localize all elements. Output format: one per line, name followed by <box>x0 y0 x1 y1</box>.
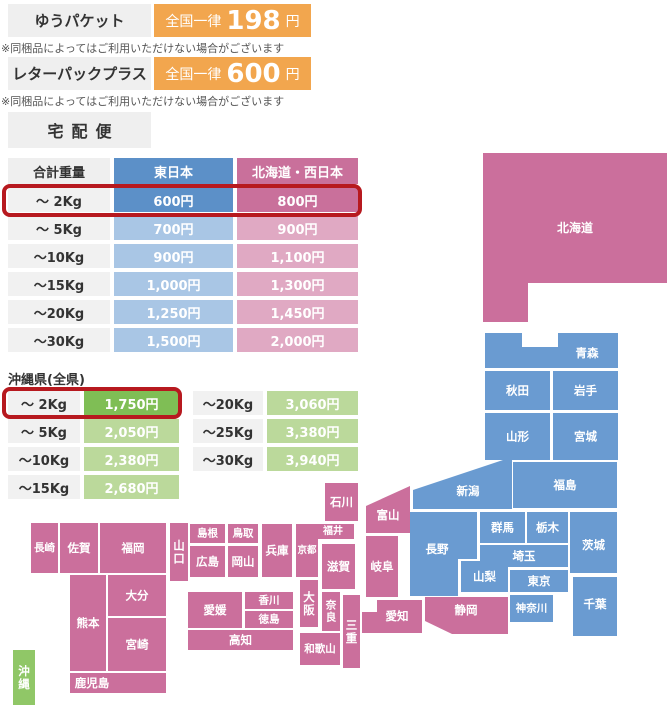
map-pref-label: 北海道 <box>557 220 593 235</box>
map-pref-label: 埼玉 <box>513 549 536 563</box>
map-pref-label: 山形 <box>506 430 529 444</box>
map-pref-label: 愛知 <box>386 609 409 623</box>
map-pref-osaka: 大阪 <box>300 580 318 627</box>
map-pref-hyogo: 兵庫 <box>262 524 292 577</box>
map-pref-label: 徳島 <box>258 613 280 626</box>
map-pref-kanagawa: 神奈川 <box>510 595 553 622</box>
map-pref-label: 秋田 <box>506 384 529 398</box>
map-pref-fukushima: 福島 <box>513 462 617 508</box>
map-pref-wakayama: 和歌山 <box>300 633 340 665</box>
map-pref-label: 長野 <box>426 542 449 556</box>
map-pref-label: 広島 <box>196 555 219 569</box>
map-pref-label: 宮崎 <box>126 638 149 652</box>
map-pref-label: 岡山 <box>232 555 255 569</box>
map-pref-fukui: 福井 <box>312 524 354 539</box>
map-pref-tokushima: 徳島 <box>245 611 293 628</box>
map-pref-toyama: 富山 <box>366 486 410 533</box>
shipping-rates-page: ゆうパケット 全国一律 198 円 ※同梱品によってはご利用いただけない場合がご… <box>0 0 667 711</box>
map-pref-label: 香川 <box>258 594 280 607</box>
map-pref-mie: 三重 <box>343 595 360 668</box>
map-pref-label: 山梨 <box>473 570 496 584</box>
map-pref-miyagi: 宮城 <box>553 413 618 460</box>
map-pref-tottori: 鳥取 <box>228 524 258 543</box>
map-pref-miyazaki: 宮崎 <box>108 618 166 671</box>
map-pref-yamagata: 山形 <box>485 413 550 460</box>
map-pref-ehime: 愛媛 <box>188 592 242 628</box>
map-pref-nara: 奈良 <box>322 592 340 631</box>
map-pref-label: 兵庫 <box>266 544 289 558</box>
map-pref-label: 山口 <box>173 539 185 566</box>
map-pref-label: 栃木 <box>536 521 559 535</box>
map-pref-label: 静岡 <box>455 603 478 617</box>
map-pref-label: 奈良 <box>325 599 337 624</box>
map-pref-shiga: 滋賀 <box>322 544 355 589</box>
map-pref-tochigi: 栃木 <box>527 512 568 543</box>
map-pref-label: 福岡 <box>121 541 145 555</box>
map-pref-label: 千葉 <box>584 597 607 611</box>
map-pref-label: 福島 <box>553 478 577 492</box>
map-pref-kochi: 高知 <box>188 630 293 650</box>
map-pref-label: 愛媛 <box>204 603 227 617</box>
map-pref-nagasaki: 長崎 <box>31 523 58 573</box>
map-pref-label: 滋賀 <box>327 560 350 574</box>
map-pref-label: 岩手 <box>573 384 597 398</box>
map-pref-label: 東京 <box>528 574 551 588</box>
map-pref-gunma: 群馬 <box>480 512 525 543</box>
map-pref-saga: 佐賀 <box>60 523 98 573</box>
map-pref-label: 青森 <box>576 346 599 360</box>
map-pref-label: 石川 <box>329 495 353 509</box>
map-pref-label: 茨城 <box>582 538 605 552</box>
map-pref-label: 福井 <box>322 524 343 537</box>
map-pref-oita: 大分 <box>108 575 166 616</box>
map-pref-label: 和歌山 <box>303 642 336 655</box>
map-pref-hokkaido: 北海道 <box>483 153 667 322</box>
map-pref-okinawa: 沖縄 <box>13 650 35 705</box>
map-pref-shimane: 島根 <box>190 524 225 543</box>
map-pref-label: 熊本 <box>77 616 100 630</box>
map-pref-ishikawa: 石川 <box>325 483 358 521</box>
map-pref-kumamoto: 熊本 <box>70 575 106 671</box>
map-pref-label: 宮城 <box>574 430 597 444</box>
map-pref-label: 富山 <box>377 508 400 522</box>
map-pref-kagoshima: 鹿児島 <box>70 673 166 693</box>
map-pref-label: 大分 <box>126 589 149 603</box>
map-pref-kyoto: 京都 <box>296 524 318 577</box>
map-pref-label: 鳥取 <box>233 527 254 540</box>
map-pref-label: 京都 <box>297 544 317 556</box>
map-pref-fukuoka: 福岡 <box>100 523 166 573</box>
map-pref-label: 鹿児島 <box>75 676 110 690</box>
map-pref-label: 三重 <box>346 618 358 645</box>
map-pref-label: 高知 <box>229 633 252 647</box>
map-pref-label: 岐阜 <box>371 560 394 574</box>
map-pref-chiba: 千葉 <box>573 577 617 636</box>
map-pref-label: 新潟 <box>457 484 480 498</box>
map-pref-label: 神奈川 <box>516 602 548 615</box>
map-pref-aichi: 愛知 <box>362 600 422 633</box>
map-pref-label: 島根 <box>197 527 218 540</box>
map-pref-okayama: 岡山 <box>228 546 258 577</box>
map-pref-gifu: 岐阜 <box>366 536 398 597</box>
map-pref-label: 大阪 <box>303 590 315 617</box>
map-pref-niigata: 新潟 <box>413 457 512 509</box>
japan-map: 北海道青森秋田岩手山形宮城福島新潟長野群馬栃木茨城埼玉山梨東京神奈川千葉石川富山… <box>0 0 667 711</box>
map-pref-label: 長崎 <box>34 541 55 554</box>
map-pref-tokyo: 東京 <box>510 570 568 592</box>
map-pref-label: 佐賀 <box>67 541 91 555</box>
map-pref-yamanashi: 山梨 <box>461 561 508 592</box>
map-pref-kagawa: 香川 <box>245 592 293 609</box>
map-pref-akita: 秋田 <box>485 371 550 410</box>
map-pref-aomori: 青森 <box>485 333 618 368</box>
map-pref-iwate: 岩手 <box>553 371 618 410</box>
map-pref-shizuoka: 静岡 <box>425 597 508 634</box>
map-pref-yamaguchi: 山口 <box>170 523 188 581</box>
map-pref-label: 沖縄 <box>18 664 30 691</box>
map-pref-ibaraki: 茨城 <box>570 512 617 573</box>
map-pref-label: 群馬 <box>490 521 514 535</box>
map-pref-hiroshima: 広島 <box>190 546 225 577</box>
